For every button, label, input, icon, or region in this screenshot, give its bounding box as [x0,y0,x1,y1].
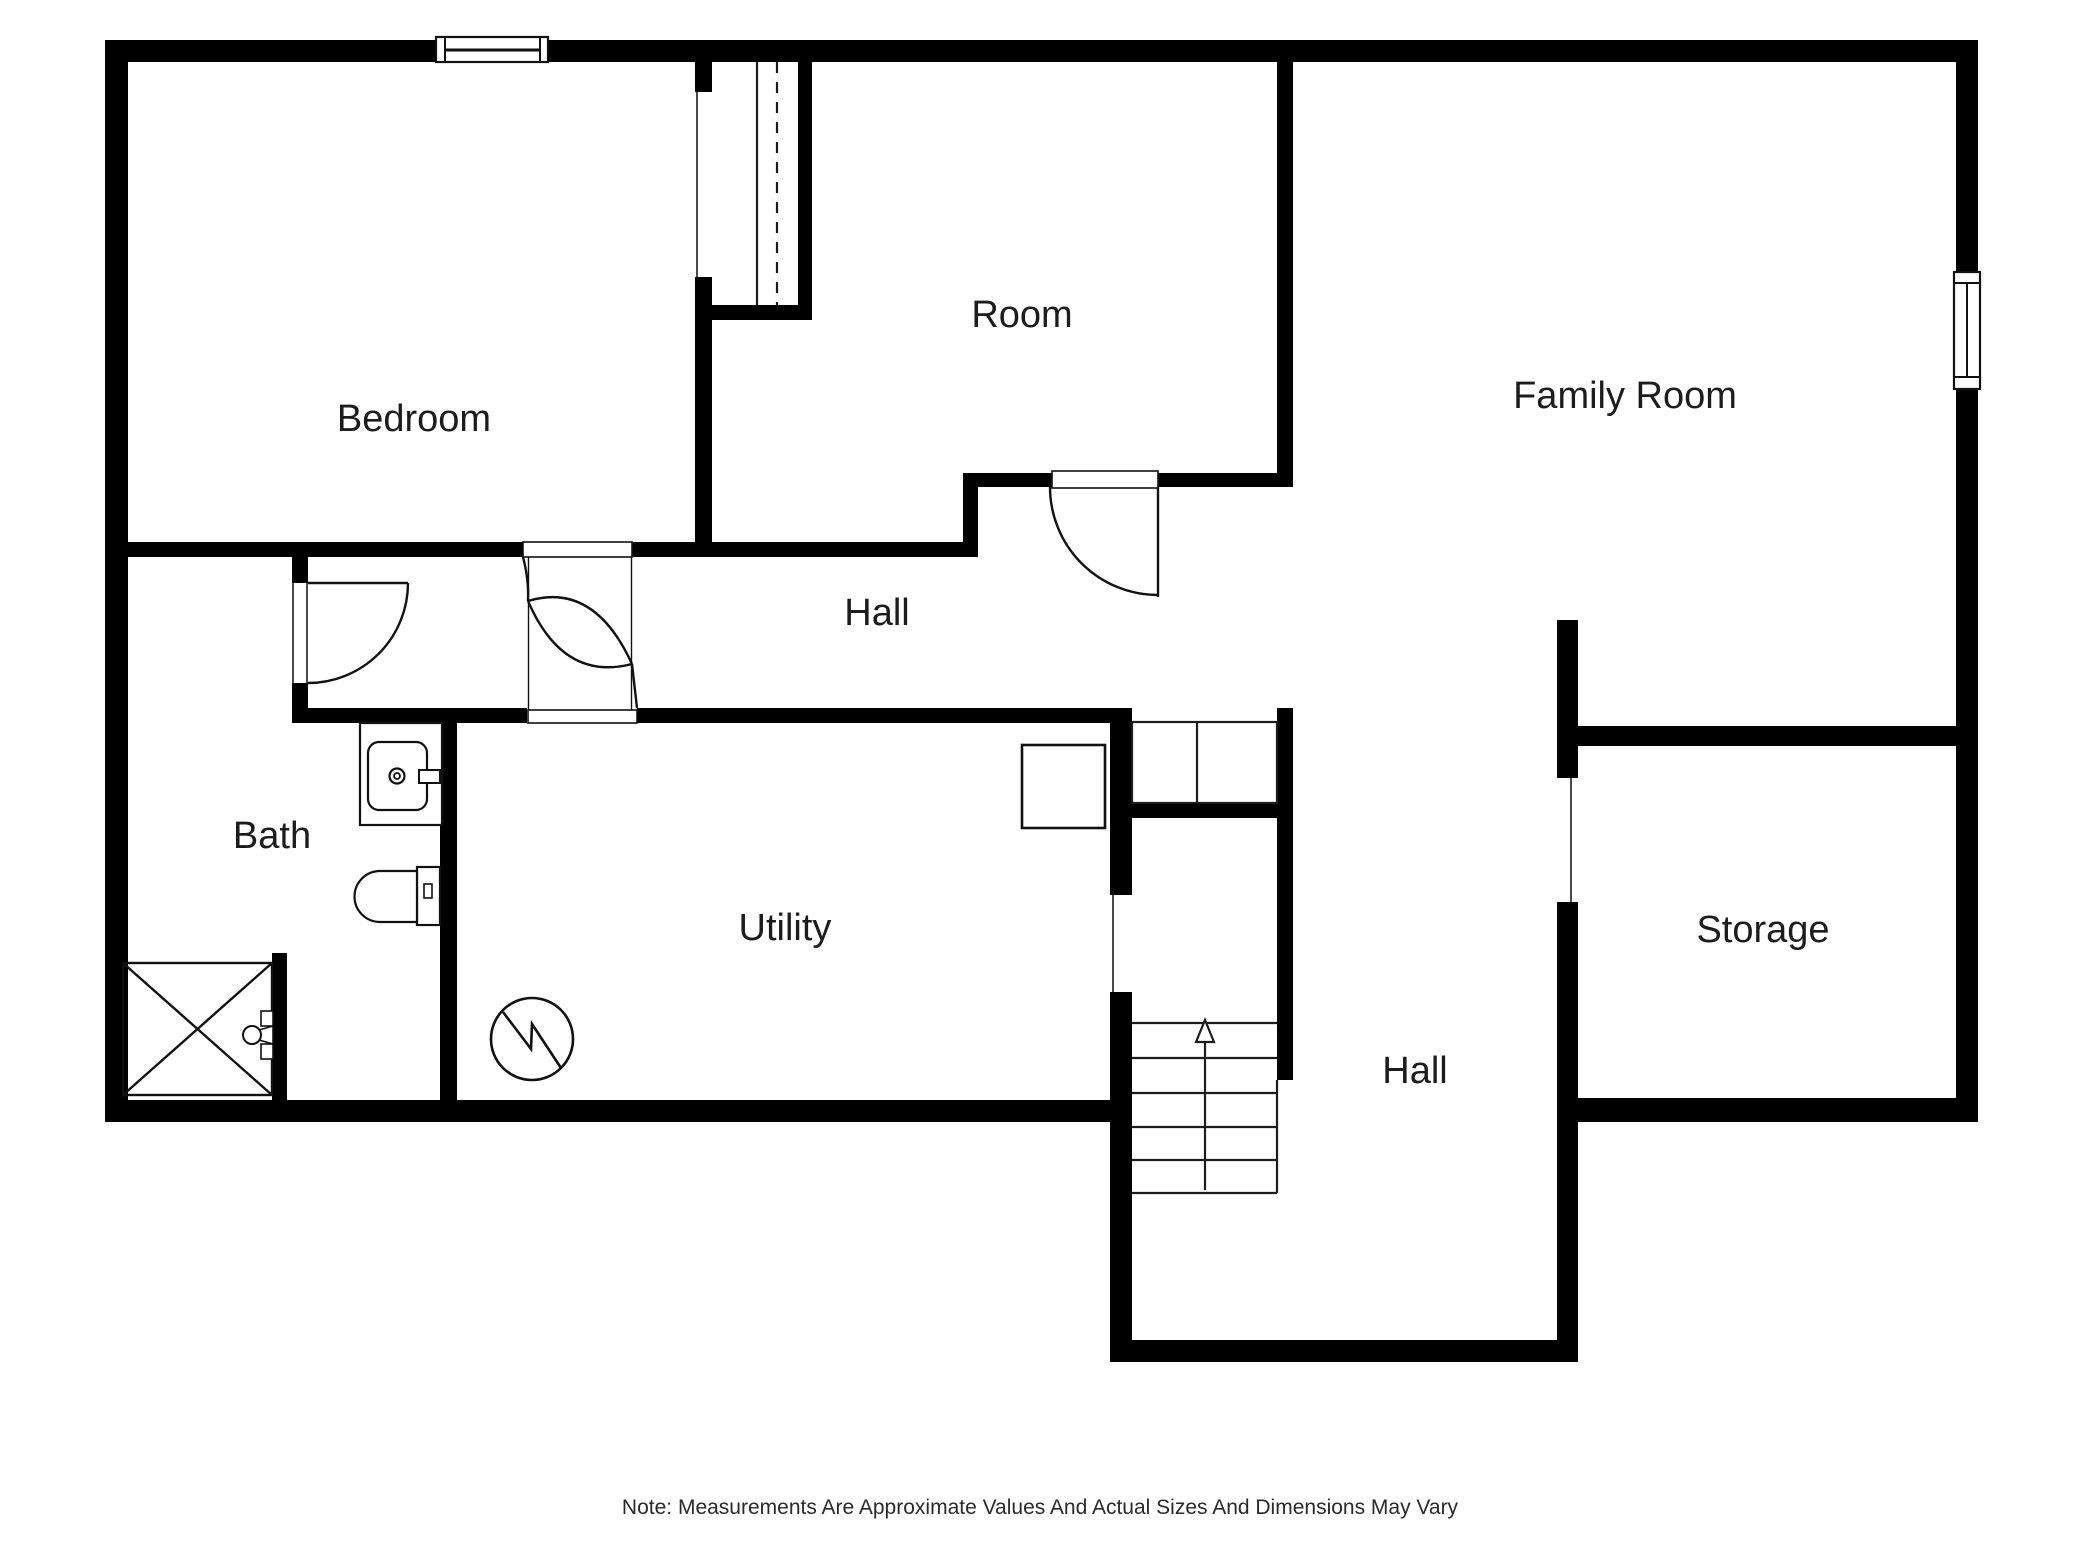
doors [308,471,1158,723]
label-bedroom: Bedroom [337,398,491,440]
label-bath: Bath [233,815,311,857]
wall-utility-right-top [1110,723,1132,895]
note-text: Note: Measurements Are Approximate Value… [622,1496,1459,1519]
wall-bedroom-right-top [695,58,712,92]
corridor-swing-door [523,542,637,723]
wall-room-family [1277,58,1293,487]
wall-storage-top [1557,726,1978,746]
bath-door [308,583,408,683]
wall-bath-door-top [292,557,308,583]
wall-storage-bottom [1557,1098,1978,1122]
appliance-square [1022,745,1105,828]
wall-hall-protrusion-left [1110,1100,1132,1362]
wall-left [105,40,128,1122]
label-room: Room [971,294,1072,336]
wall-shower-stub [272,953,287,1102]
room-labels: Bedroom Room Family Room Hall Bath Utili… [233,294,1830,1092]
room-door [1050,471,1158,597]
label-utility: Utility [739,907,832,949]
wall-closet-bottom [712,305,812,320]
wall-room-bottom-b [1158,473,1293,487]
closet-lines [757,62,777,305]
label-family-room: Family Room [1513,375,1737,417]
floor-plan: Bedroom Room Family Room Hall Bath Utili… [0,0,2080,1560]
wall-hall-top-a [105,542,523,557]
stairs-up-arrow [1196,1020,1214,1190]
wall-hall-bottom-a [292,708,527,723]
windows [436,37,1980,389]
wall-right [1956,40,1978,1122]
shower-valve [243,1011,273,1059]
wall-stairs-right [1277,708,1293,1080]
bedroom-window [436,37,548,62]
toilet [355,867,441,925]
wall-storage-left-top [1557,620,1578,778]
wall-room-bottom-a [963,473,1052,487]
stair-landing-cells [1132,722,1277,803]
wall-top [105,40,1978,62]
wall-hall-bottom-b [637,708,1132,723]
family-room-window [1954,272,1980,389]
wall-utility-right-bottom [1110,992,1132,1100]
label-storage: Storage [1696,909,1829,951]
water-heater-circle [491,998,573,1080]
wall-bottom-main [105,1100,1132,1122]
walls [105,40,1978,1362]
label-hall-lower: Hall [1382,1050,1447,1092]
label-hall-upper: Hall [844,592,909,634]
wall-closet-right [798,58,812,320]
stairs [1132,722,1277,1193]
wall-stair-cells-bottom [1132,803,1277,818]
wall-hall-protrusion-right [1557,1122,1578,1362]
wall-storage-left-bottom [1557,902,1578,1098]
wall-hall-top-b [632,542,978,557]
sink-vanity [360,723,442,825]
floor-plan-page: Bedroom Room Family Room Hall Bath Utili… [0,0,2080,1560]
wall-bedroom-right-bottom [695,277,712,557]
wall-hall-protrusion-bottom [1110,1340,1578,1362]
